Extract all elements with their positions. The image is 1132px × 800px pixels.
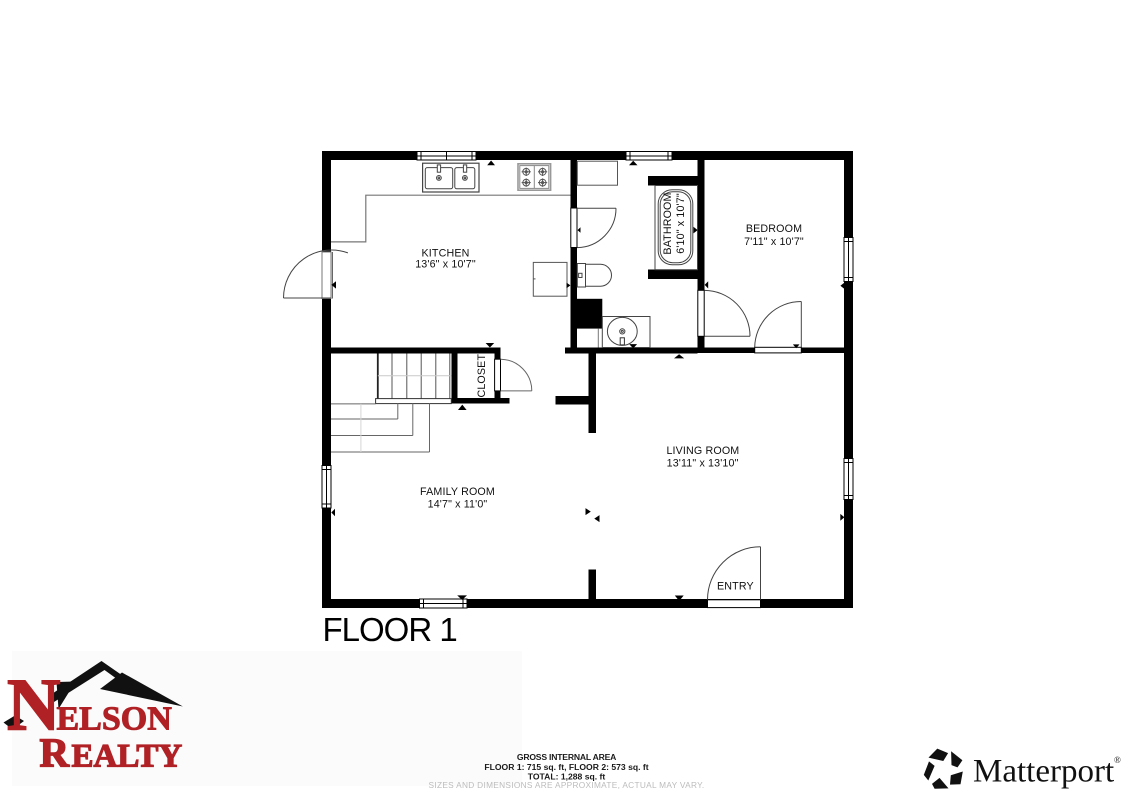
svg-text:FAMILY ROOM: FAMILY ROOM xyxy=(420,486,495,498)
svg-text:®: ® xyxy=(1114,755,1121,765)
svg-text:GROSS INTERNAL AREA: GROSS INTERNAL AREA xyxy=(517,752,616,762)
svg-text:SIZES AND DIMENSIONS ARE APPRO: SIZES AND DIMENSIONS ARE APPROXIMATE, AC… xyxy=(429,780,705,790)
svg-text:ENTRY: ENTRY xyxy=(717,580,754,592)
svg-text:EALTY: EALTY xyxy=(72,738,183,774)
svg-text:CLOSET: CLOSET xyxy=(476,354,488,398)
svg-text:R: R xyxy=(40,729,70,775)
svg-text:LIVING ROOM: LIVING ROOM xyxy=(666,445,739,457)
svg-text:7'11" x 10'7": 7'11" x 10'7" xyxy=(744,236,804,248)
svg-text:BATHROOM: BATHROOM xyxy=(662,192,674,254)
svg-text:13'6" x 10'7": 13'6" x 10'7" xyxy=(415,259,476,271)
svg-text:ELSON: ELSON xyxy=(57,701,173,738)
svg-text:6'10" x 10'7": 6'10" x 10'7" xyxy=(675,193,687,254)
svg-text:13'11" x 13'10": 13'11" x 13'10" xyxy=(667,458,739,470)
svg-text:BEDROOM: BEDROOM xyxy=(746,223,802,235)
svg-text:14'7" x 11'0": 14'7" x 11'0" xyxy=(428,499,488,511)
svg-text:Matterport: Matterport xyxy=(973,754,1114,790)
svg-text:FLOOR 1: FLOOR 1 xyxy=(323,611,457,648)
